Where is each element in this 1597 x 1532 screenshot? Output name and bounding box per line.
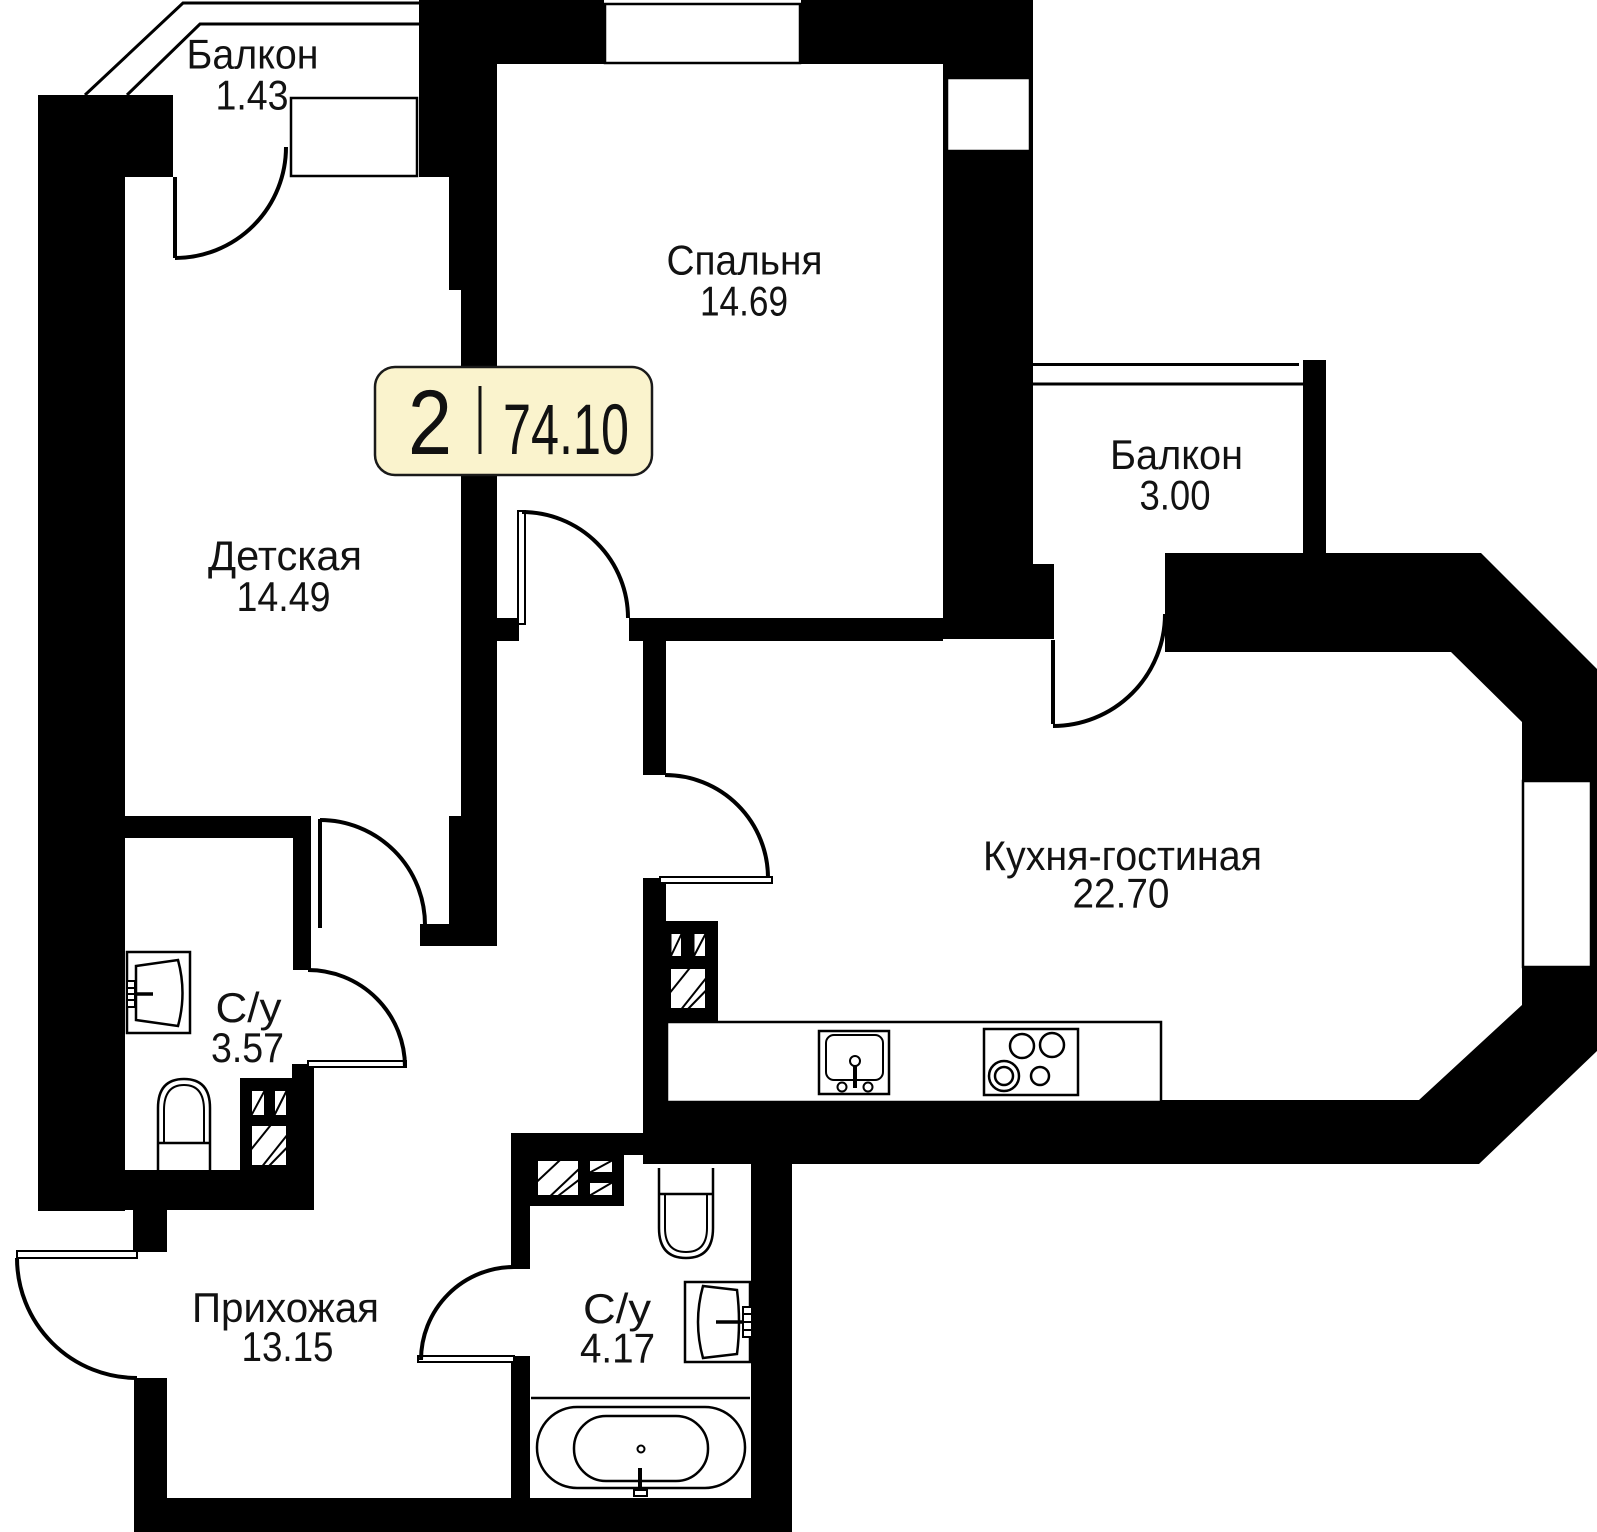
svg-text:3.57: 3.57 [211,1024,284,1071]
svg-text:1.43: 1.43 [216,72,289,119]
svg-text:22.70: 22.70 [1073,870,1170,917]
svg-text:Детская: Детская [208,532,362,579]
svg-text:74.10: 74.10 [503,391,629,470]
svg-text:Спальня: Спальня [667,237,823,284]
svg-text:13.15: 13.15 [242,1323,334,1370]
svg-text:2: 2 [408,372,452,474]
svg-text:3.00: 3.00 [1140,472,1211,519]
svg-text:14.69: 14.69 [700,278,788,325]
svg-text:Балкон: Балкон [187,31,319,78]
svg-text:4.17: 4.17 [580,1325,655,1372]
svg-text:14.49: 14.49 [237,573,331,620]
